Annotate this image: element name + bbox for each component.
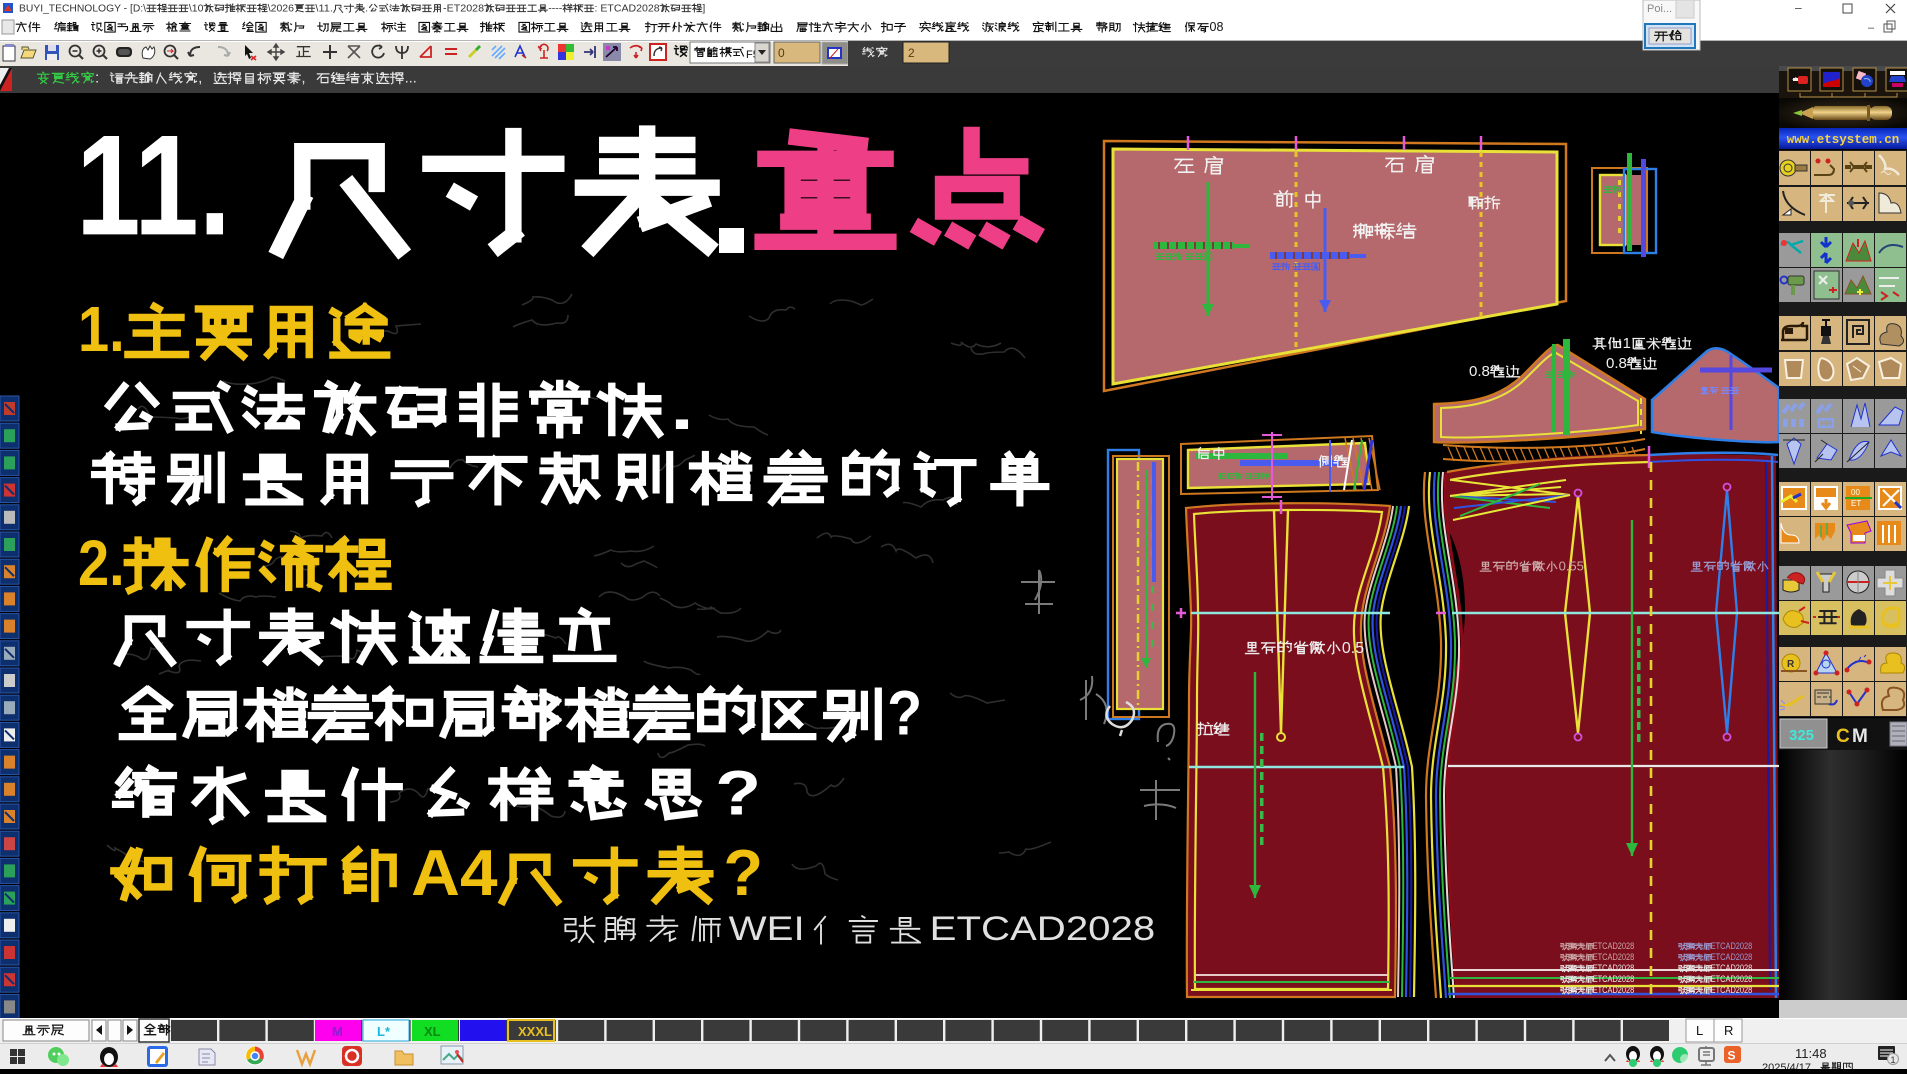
svg-text:XXXL: XXXL: [518, 1024, 552, 1039]
svg-text:00: 00: [1851, 488, 1860, 497]
svg-text:R: R: [1787, 659, 1795, 670]
svg-text:?: ?: [887, 678, 922, 748]
svg-text:ETCAD2028: ETCAD2028: [1711, 941, 1753, 951]
svg-text:]: ]: [702, 2, 705, 14]
svg-text:,: ,: [198, 71, 202, 87]
svg-text:WEI: WEI: [729, 910, 805, 948]
svg-text:\11.: \11.: [315, 2, 333, 14]
svg-text:ETCAD2028: ETCAD2028: [1711, 952, 1753, 962]
svg-text:M: M: [332, 1024, 343, 1039]
svg-text:\10: \10: [189, 2, 204, 14]
svg-text:ETCAD2028: ETCAD2028: [1711, 985, 1753, 995]
svg-text:0.55: 0.55: [1559, 558, 1584, 573]
svg-text:C: C: [1836, 726, 1850, 747]
svg-text:.: .: [365, 2, 368, 14]
svg-text:11.: 11.: [76, 106, 231, 265]
svg-text:: ETCAD2028: : ETCAD2028: [595, 2, 660, 14]
svg-text:0: 0: [778, 46, 785, 60]
svg-text:S: S: [1728, 1049, 1736, 1063]
svg-text:BUYI_TECHNOLOGY - [D:\: BUYI_TECHNOLOGY - [D:\: [19, 2, 146, 14]
svg-text:2: 2: [908, 46, 915, 60]
svg-text:ETCAD2028: ETCAD2028: [1593, 974, 1635, 984]
svg-text:–: –: [1795, 1, 1802, 15]
svg-text::: :: [95, 71, 99, 87]
svg-text:ETCAD2028: ETCAD2028: [1593, 963, 1635, 973]
svg-text:2.: 2.: [78, 527, 125, 599]
svg-text:1.: 1.: [78, 293, 125, 365]
svg-text:\2026: \2026: [268, 2, 294, 14]
svg-text:?: ?: [715, 758, 761, 828]
svg-text:M: M: [1852, 726, 1868, 747]
svg-text:08: 08: [1210, 20, 1224, 34]
svg-text:.: .: [670, 371, 694, 443]
svg-text:ETCAD2028: ETCAD2028: [1711, 963, 1753, 973]
svg-text:A4: A4: [411, 836, 497, 909]
svg-text:–: –: [1868, 22, 1875, 34]
svg-text:,: ,: [302, 71, 306, 87]
svg-text:11:48: 11:48: [1795, 1046, 1827, 1061]
svg-text:1: 1: [1623, 335, 1631, 352]
svg-text:L: L: [1696, 1023, 1703, 1038]
svg-text:-ET2028: -ET2028: [443, 2, 484, 14]
svg-text:L*: L*: [377, 1024, 391, 1039]
svg-text:?: ?: [723, 836, 763, 909]
svg-text:XL: XL: [424, 1024, 441, 1039]
svg-text:ET: ET: [1851, 499, 1861, 508]
svg-text:ETCAD2028: ETCAD2028: [1711, 974, 1753, 984]
svg-text:0.5: 0.5: [1342, 640, 1364, 657]
svg-text:2025/4/17: 2025/4/17: [1762, 1062, 1811, 1069]
svg-text:ETCAD2028: ETCAD2028: [1593, 952, 1635, 962]
svg-text:0.8: 0.8: [1606, 355, 1627, 372]
svg-text:0.8: 0.8: [1469, 363, 1490, 380]
svg-text:...: ...: [405, 71, 417, 87]
svg-text:ETCAD2028: ETCAD2028: [1593, 941, 1635, 951]
svg-text:ETCAD2028: ETCAD2028: [930, 910, 1156, 948]
svg-text:R: R: [1724, 1023, 1733, 1038]
svg-text:1: 1: [1891, 1055, 1896, 1065]
svg-text:ETCAD2028: ETCAD2028: [1593, 985, 1635, 995]
svg-text:----: ----: [548, 2, 562, 14]
svg-text:325: 325: [1789, 727, 1814, 744]
svg-text:www.etsystem.cn: www.etsystem.cn: [1787, 133, 1900, 147]
svg-text:Poi...: Poi...: [1647, 3, 1672, 15]
